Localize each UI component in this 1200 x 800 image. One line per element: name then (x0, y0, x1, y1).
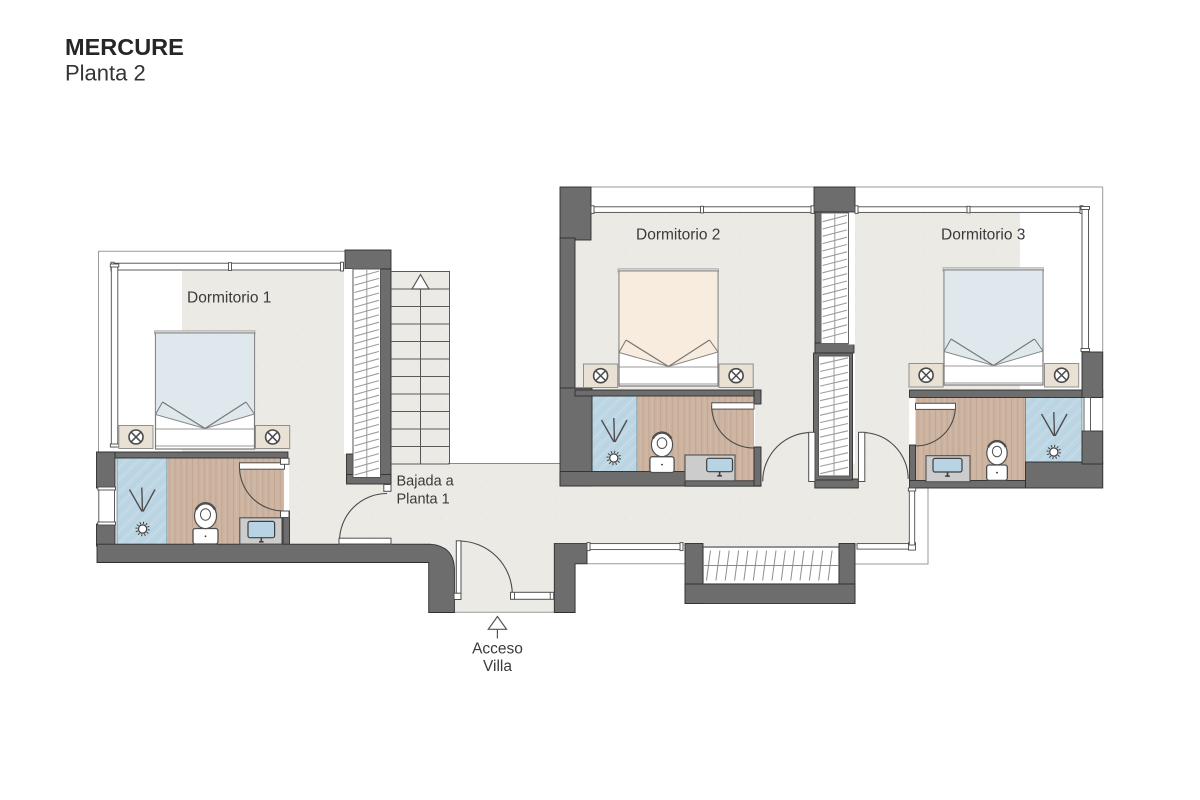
svg-text:Dormitorio 2: Dormitorio 2 (636, 227, 720, 244)
svg-text:Villa: Villa (483, 658, 512, 675)
svg-text:Dormitorio 3: Dormitorio 3 (941, 227, 1025, 244)
svg-text:MERCURE: MERCURE (65, 34, 184, 60)
svg-text:Bajada a: Bajada a (397, 474, 455, 490)
svg-text:Planta 1: Planta 1 (397, 492, 450, 508)
svg-text:Planta 2: Planta 2 (65, 61, 146, 86)
svg-text:Acceso: Acceso (472, 641, 523, 658)
svg-text:Dormitorio 1: Dormitorio 1 (187, 290, 271, 307)
